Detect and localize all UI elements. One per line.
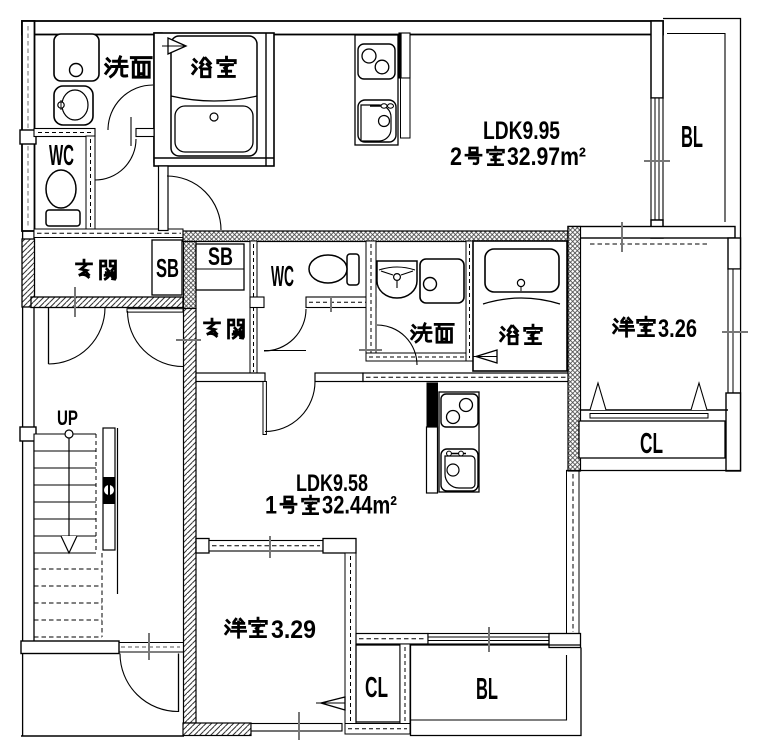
svg-text:3.29: 3.29 xyxy=(271,616,316,644)
svg-text:32.44m²: 32.44m² xyxy=(322,492,397,520)
svg-text:2: 2 xyxy=(450,143,462,171)
svg-text:32.97m²: 32.97m² xyxy=(507,143,586,171)
svg-text:UP: UP xyxy=(57,407,78,430)
svg-text:3.26: 3.26 xyxy=(658,315,697,343)
svg-text:SB: SB xyxy=(208,243,233,271)
svg-text:BL: BL xyxy=(476,671,498,706)
svg-text:WC: WC xyxy=(271,261,294,293)
svg-text:1: 1 xyxy=(265,492,277,520)
svg-text:LDK9.95: LDK9.95 xyxy=(483,117,560,145)
svg-text:CL: CL xyxy=(365,672,388,704)
svg-text:SB: SB xyxy=(156,253,179,283)
svg-text:CL: CL xyxy=(640,428,663,460)
svg-text:BL: BL xyxy=(681,119,703,154)
svg-text:WC: WC xyxy=(49,140,74,172)
